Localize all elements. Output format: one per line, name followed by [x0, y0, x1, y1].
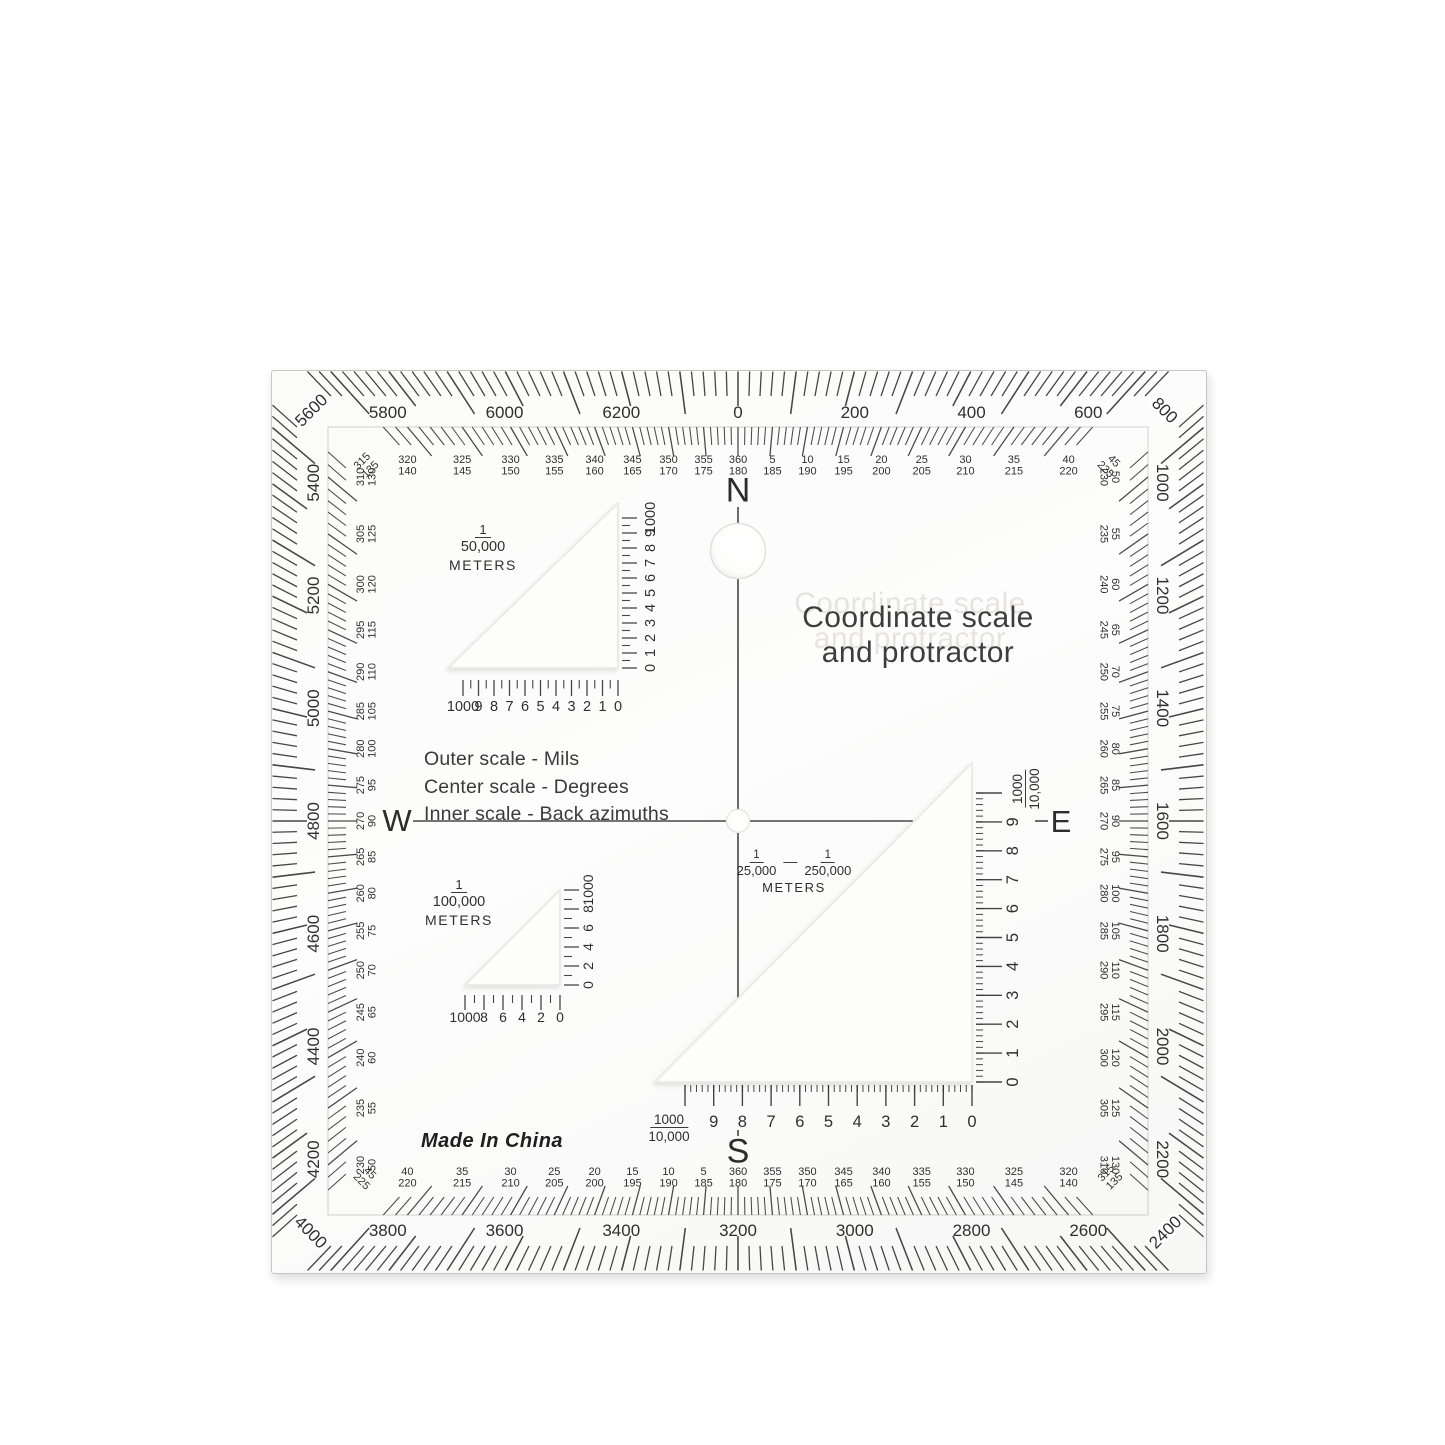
bottom-scale-fraction: 1000 10,000 — [648, 1113, 689, 1145]
scale-number: 2 — [643, 634, 659, 642]
fraction-50000: 1 50,000 — [461, 523, 505, 555]
scale-number: 0 — [580, 981, 596, 989]
degree-pair-label: 330150 — [501, 454, 519, 478]
degree-pair-label: 35215 — [453, 1166, 471, 1190]
fraction-1000-10000: 1000 10,000 — [648, 1113, 689, 1145]
scale-number: 1 — [643, 649, 659, 657]
degree-pair-label: 350170 — [798, 1166, 816, 1190]
scale-number: 8 — [643, 544, 659, 552]
degree-pair-label: 90270 — [1097, 812, 1121, 830]
degree-pair-label: 340160 — [872, 1166, 890, 1190]
center-hole — [727, 810, 750, 833]
scale-number: 5 — [824, 1113, 833, 1131]
degree-pair-label: 75255 — [1097, 702, 1121, 720]
degree-pair-label: 290110 — [355, 663, 379, 681]
scale-number: 8 — [1004, 846, 1022, 855]
degree-pair-label: 70250 — [1097, 663, 1121, 681]
scale-number: 0 — [643, 664, 659, 672]
scale-number: 5600 — [291, 390, 331, 430]
unit-label: METERS — [425, 912, 493, 928]
fraction-denominator: 10,000 — [1026, 768, 1043, 809]
degree-pair-label: 15195 — [834, 454, 852, 478]
degree-pair-label: 300120 — [355, 575, 379, 593]
degree-pair-label: 23555 — [355, 1099, 379, 1117]
cardinal-west: W — [382, 803, 411, 839]
scale-number: 4 — [518, 1009, 526, 1025]
scale-number: 0 — [733, 403, 742, 422]
scale-number: 0 — [1004, 1077, 1022, 1086]
degree-pair-label: 95275 — [1097, 848, 1121, 866]
scale-number: 4400 — [304, 1028, 323, 1066]
protractor-product-photo: 0200400600800100012001400160018002000220… — [0, 0, 1445, 1445]
scale-number: 6 — [643, 574, 659, 582]
fraction-denominator: 250,000 — [804, 863, 851, 878]
degree-pair-label: 345165 — [623, 454, 641, 478]
scale-number: 8 — [490, 699, 498, 715]
degree-pair-label: 320140 — [1059, 1166, 1077, 1190]
degree-pair-label: 27090 — [355, 812, 379, 830]
scale-number: 2200 — [1153, 1140, 1172, 1178]
scale-number: 2000 — [1153, 1028, 1172, 1066]
scale-number: 5800 — [369, 403, 407, 422]
degree-pair-label: 350170 — [659, 454, 677, 478]
degree-pair-label: 24565 — [355, 1003, 379, 1021]
scale-number: 5200 — [304, 577, 323, 615]
scale-number: 3 — [567, 699, 575, 715]
degree-pair-label: 30210 — [956, 454, 974, 478]
fraction-numerator: 1 — [475, 523, 490, 538]
degree-pair-label: 125305 — [1097, 1099, 1121, 1117]
degree-pair-label: 335155 — [913, 1166, 931, 1190]
scale-number: 8 — [738, 1113, 747, 1131]
degree-pair-label: 105285 — [1097, 922, 1121, 940]
cardinal-east: E — [1051, 804, 1072, 840]
degree-pair-label: 345165 — [834, 1166, 852, 1190]
scale-number: 2400 — [1145, 1212, 1185, 1252]
triangle-25000-250000 — [655, 763, 972, 1082]
legend-outer-scale: Outer scale - Mils — [424, 746, 669, 774]
cardinal-north: N — [726, 472, 751, 511]
fraction-numerator: 1000 — [1011, 770, 1026, 808]
side-scale-fraction: 1000 10,000 — [1011, 768, 1043, 809]
fraction-1000-10000-rotated: 1000 10,000 — [1011, 768, 1043, 809]
scale-number: 1400 — [1153, 689, 1172, 727]
degree-pair-label: 26080 — [355, 884, 379, 902]
scale-number: 4200 — [304, 1140, 323, 1178]
scale-legend: Outer scale - Mils Center scale - Degree… — [424, 746, 669, 829]
cardinal-south: S — [727, 1133, 750, 1172]
scale-number: 3400 — [602, 1221, 640, 1240]
protractor-graphics: 0200400600800100012001400160018002000220… — [0, 0, 1445, 1445]
fraction-25000: 1 25,000 — [737, 850, 777, 878]
title-line2: and protractor — [802, 635, 1034, 670]
degree-pair-label: 27595 — [355, 776, 379, 794]
degree-pair-label: 355175 — [694, 454, 712, 478]
scale-number: 9 — [474, 699, 482, 715]
fraction-row: 1 25,000 — 1 250,000 — [737, 850, 852, 878]
degree-pair-label: 55235 — [1097, 525, 1121, 543]
scale-number: 200 — [841, 403, 869, 422]
unit-label: METERS — [737, 880, 852, 895]
dash-separator: — — [783, 853, 797, 869]
scale-number: 2 — [1004, 1020, 1022, 1029]
degree-pair-label: 40220 — [398, 1166, 416, 1190]
scale-number: 3 — [1004, 991, 1022, 1000]
scale-number: 7 — [1004, 875, 1022, 884]
degree-pair-label: 40220 — [1059, 454, 1077, 478]
scale-number: 5000 — [304, 689, 323, 727]
degree-pair-label: 25070 — [355, 961, 379, 979]
scale-number: 400 — [957, 403, 985, 422]
scale-number: 7 — [505, 699, 513, 715]
degree-pair-label: 340160 — [585, 454, 603, 478]
degree-pair-label: 335155 — [545, 454, 563, 478]
degree-pair-label: 5185 — [694, 1166, 712, 1190]
degree-pair-label: 295115 — [355, 621, 379, 639]
unit-label: METERS — [449, 557, 517, 573]
scale-number: 4 — [580, 943, 596, 951]
scale-number: 3 — [643, 619, 659, 627]
degree-pair-label: 115295 — [1097, 1003, 1121, 1021]
degree-pair-label: 35215 — [1005, 454, 1023, 478]
degree-pair-label: 305125 — [355, 525, 379, 543]
degree-pair-label: 26585 — [355, 848, 379, 866]
fraction-250000: 1 250,000 — [804, 850, 851, 878]
scale-number: 2 — [580, 962, 596, 970]
fraction-100000: 1 100,000 — [433, 878, 485, 910]
scale-number: 4 — [1004, 962, 1022, 971]
degree-pair-label: 24060 — [355, 1049, 379, 1067]
scale-number: 4 — [643, 604, 659, 612]
scale-number: 1000 — [1153, 464, 1172, 502]
degree-pair-label: 25205 — [913, 454, 931, 478]
scale-number: 7 — [767, 1113, 776, 1131]
degree-pair-label: 23050 — [355, 1156, 379, 1174]
scale-number: 3800 — [369, 1221, 407, 1240]
scale-number: 4800 — [304, 802, 323, 840]
scale-number: 6200 — [602, 403, 640, 422]
scale-number: 4000 — [291, 1212, 331, 1252]
legend-inner-scale: Inner scale - Back azimuths — [424, 801, 669, 829]
degree-pair-label: 10190 — [798, 454, 816, 478]
degree-pair-label: 15195 — [623, 1166, 641, 1190]
scale-number: 1000 — [643, 502, 659, 534]
scale-number: 7 — [643, 559, 659, 567]
scale-number: 0 — [556, 1009, 564, 1025]
scale-number: 9 — [1004, 817, 1022, 826]
scale-number: 6 — [580, 924, 596, 932]
scale-number: 5 — [643, 589, 659, 597]
degree-pair-label: 285105 — [355, 702, 379, 720]
degree-pair-label: 25205 — [545, 1166, 563, 1190]
degree-pair-label: 65245 — [1097, 621, 1121, 639]
scale-number: 5 — [536, 699, 544, 715]
degree-pair-label: 120300 — [1097, 1049, 1121, 1067]
degree-pair-label: 60240 — [1097, 575, 1121, 593]
scale-number: 6 — [521, 699, 529, 715]
fraction-numerator: 1000 — [650, 1113, 688, 1128]
scale-number: 1800 — [1153, 915, 1172, 953]
scale-number: 2 — [583, 699, 591, 715]
degree-pair-label: 100280 — [1097, 884, 1121, 902]
scale-label-25000-250000: 1 25,000 — 1 250,000 METERS — [737, 850, 852, 895]
scale-number: 1000 — [580, 874, 596, 905]
fraction-denominator: 50,000 — [461, 538, 505, 555]
scale-number: 1 — [939, 1113, 948, 1131]
degree-pair-label: 10190 — [659, 1166, 677, 1190]
scale-number: 0 — [614, 699, 622, 715]
scale-number: 2 — [537, 1009, 545, 1025]
scale-number: 9 — [709, 1113, 718, 1131]
scale-number: 800 — [1148, 394, 1181, 427]
scale-number: 6000 — [486, 403, 524, 422]
scale-number: 2800 — [953, 1221, 991, 1240]
degree-pair-label: 80260 — [1097, 740, 1121, 758]
scale-number: 6 — [1004, 904, 1022, 913]
fraction-denominator: 25,000 — [737, 863, 777, 878]
scale-number: 2 — [910, 1113, 919, 1131]
degree-pair-label: 325145 — [453, 454, 471, 478]
scale-number: 3600 — [486, 1221, 524, 1240]
fraction-numerator: 1 — [749, 850, 763, 863]
scale-number: 3 — [881, 1113, 890, 1131]
degree-pair-label: 50230 — [1097, 468, 1121, 486]
scale-number: 3000 — [836, 1221, 874, 1240]
scale-number: 1600 — [1153, 802, 1172, 840]
scale-number: 6 — [499, 1009, 507, 1025]
scale-label-50000: 1 50,000 METERS — [449, 523, 517, 573]
fraction-numerator: 1 — [451, 878, 466, 893]
degree-pair-label: 5185 — [763, 454, 781, 478]
degree-pair-label: 20200 — [872, 454, 890, 478]
degree-pair-label: 20200 — [585, 1166, 603, 1190]
scale-number: 4 — [853, 1113, 862, 1131]
fraction-denominator: 10,000 — [648, 1128, 689, 1145]
scale-number: 5 — [1004, 933, 1022, 942]
scale-number: 600 — [1074, 403, 1102, 422]
scale-number: 4 — [552, 699, 560, 715]
scale-number: 0 — [967, 1113, 976, 1131]
fraction-numerator: 1 — [821, 850, 835, 863]
fraction-denominator: 100,000 — [433, 893, 485, 910]
product-title: Coordinate scale and protractor — [802, 600, 1034, 670]
scale-number: 2600 — [1069, 1221, 1107, 1240]
scale-label-100000: 1 100,000 METERS — [425, 878, 493, 928]
degree-pair-label: 30210 — [501, 1166, 519, 1190]
lanyard-hole — [711, 524, 766, 579]
degree-pair-label: 355175 — [763, 1166, 781, 1190]
scale-number: 1000 — [449, 1009, 480, 1025]
legend-center-scale: Center scale - Degrees — [424, 774, 669, 802]
scale-number: 5400 — [304, 464, 323, 502]
made-in-label: Made In China — [421, 1130, 563, 1153]
degree-pair-label: 110290 — [1097, 961, 1121, 979]
title-line1: Coordinate scale — [802, 600, 1034, 635]
scale-number: 4600 — [304, 915, 323, 953]
degree-pair-label: 325145 — [1005, 1166, 1023, 1190]
scale-number: 6 — [795, 1113, 804, 1131]
scale-number: 1 — [1004, 1049, 1022, 1058]
degree-pair-label: 280100 — [355, 740, 379, 758]
scale-number: 8 — [480, 1009, 488, 1025]
scale-number: 3200 — [719, 1221, 757, 1240]
scale-number: 1 — [598, 699, 606, 715]
degree-pair-label: 85265 — [1097, 776, 1121, 794]
degree-pair-label: 330150 — [956, 1166, 974, 1190]
degree-pair-label: 25575 — [355, 922, 379, 940]
degree-pair-label: 320140 — [398, 454, 416, 478]
scale-number: 1200 — [1153, 577, 1172, 615]
